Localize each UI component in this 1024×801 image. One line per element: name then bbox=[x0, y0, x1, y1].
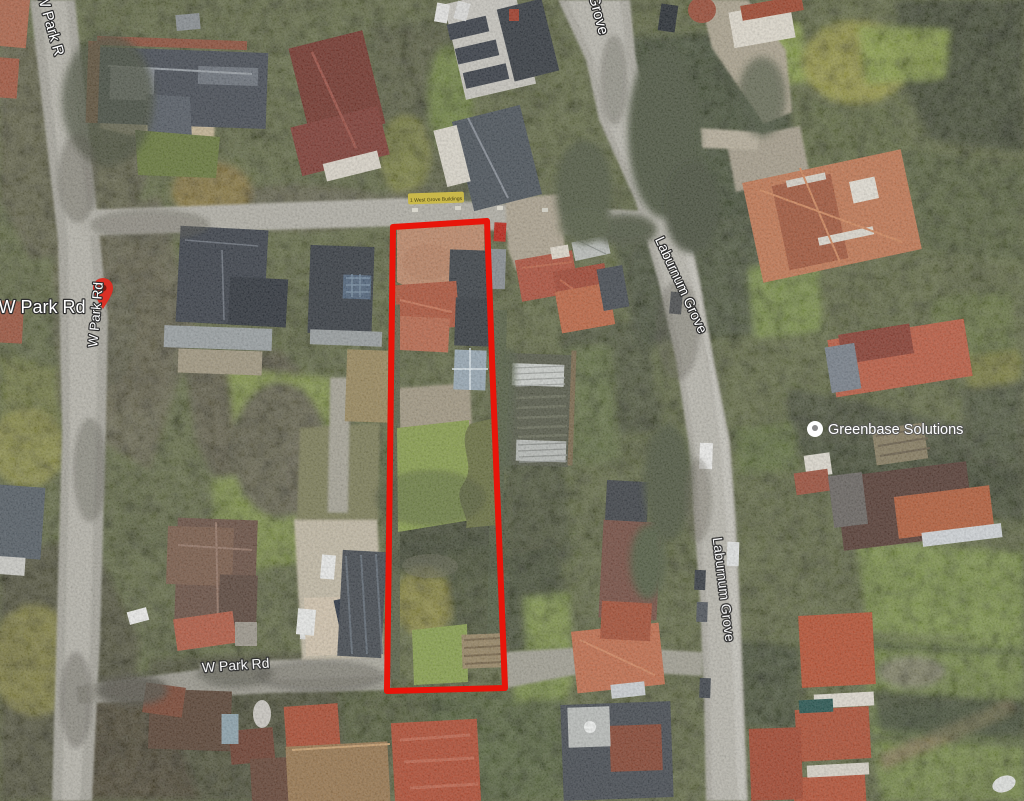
svg-text:W Park Rd: W Park Rd bbox=[0, 297, 86, 317]
svg-text:Greenbase Solutions: Greenbase Solutions bbox=[828, 422, 963, 438]
